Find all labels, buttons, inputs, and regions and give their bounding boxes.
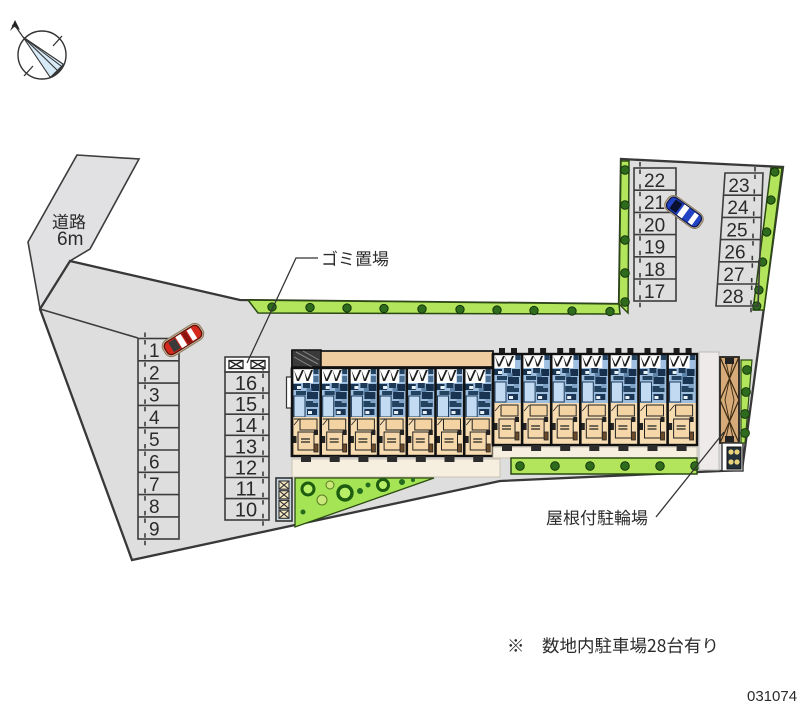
- svg-text:27: 27: [723, 265, 744, 286]
- svg-text:15: 15: [235, 394, 257, 416]
- svg-text:18: 18: [644, 260, 665, 281]
- svg-text:28: 28: [722, 287, 743, 308]
- svg-text:10: 10: [235, 500, 257, 522]
- svg-text:8: 8: [149, 497, 160, 518]
- svg-text:17: 17: [644, 282, 665, 303]
- svg-text:16: 16: [235, 373, 257, 395]
- svg-text:4: 4: [149, 408, 160, 429]
- svg-text:20: 20: [644, 215, 665, 236]
- svg-text:22: 22: [644, 171, 665, 192]
- svg-text:19: 19: [644, 238, 665, 259]
- svg-text:5: 5: [149, 430, 160, 451]
- svg-text:25: 25: [726, 220, 747, 241]
- svg-text:031074: 031074: [747, 688, 797, 705]
- svg-text:12: 12: [235, 457, 257, 479]
- svg-text:9: 9: [149, 519, 160, 540]
- svg-text:2: 2: [149, 363, 160, 384]
- svg-text:6: 6: [149, 453, 160, 474]
- svg-text:14: 14: [235, 415, 257, 437]
- svg-text:7: 7: [149, 475, 160, 496]
- svg-text:13: 13: [235, 436, 257, 458]
- svg-text:26: 26: [724, 243, 745, 264]
- svg-text:21: 21: [644, 193, 665, 214]
- svg-text:6m: 6m: [57, 229, 83, 250]
- svg-text:1: 1: [149, 341, 160, 362]
- svg-text:24: 24: [727, 198, 749, 219]
- svg-text:11: 11: [236, 479, 257, 501]
- svg-text:3: 3: [149, 386, 160, 407]
- svg-text:23: 23: [728, 176, 749, 197]
